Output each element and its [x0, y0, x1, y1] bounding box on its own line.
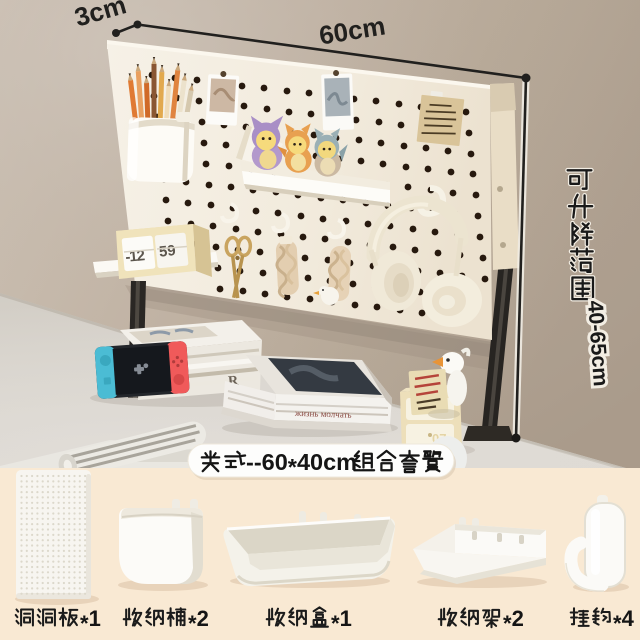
svg-text:59: 59	[158, 242, 176, 261]
svg-text:жизнь молчать: жизнь молчать	[294, 408, 352, 420]
